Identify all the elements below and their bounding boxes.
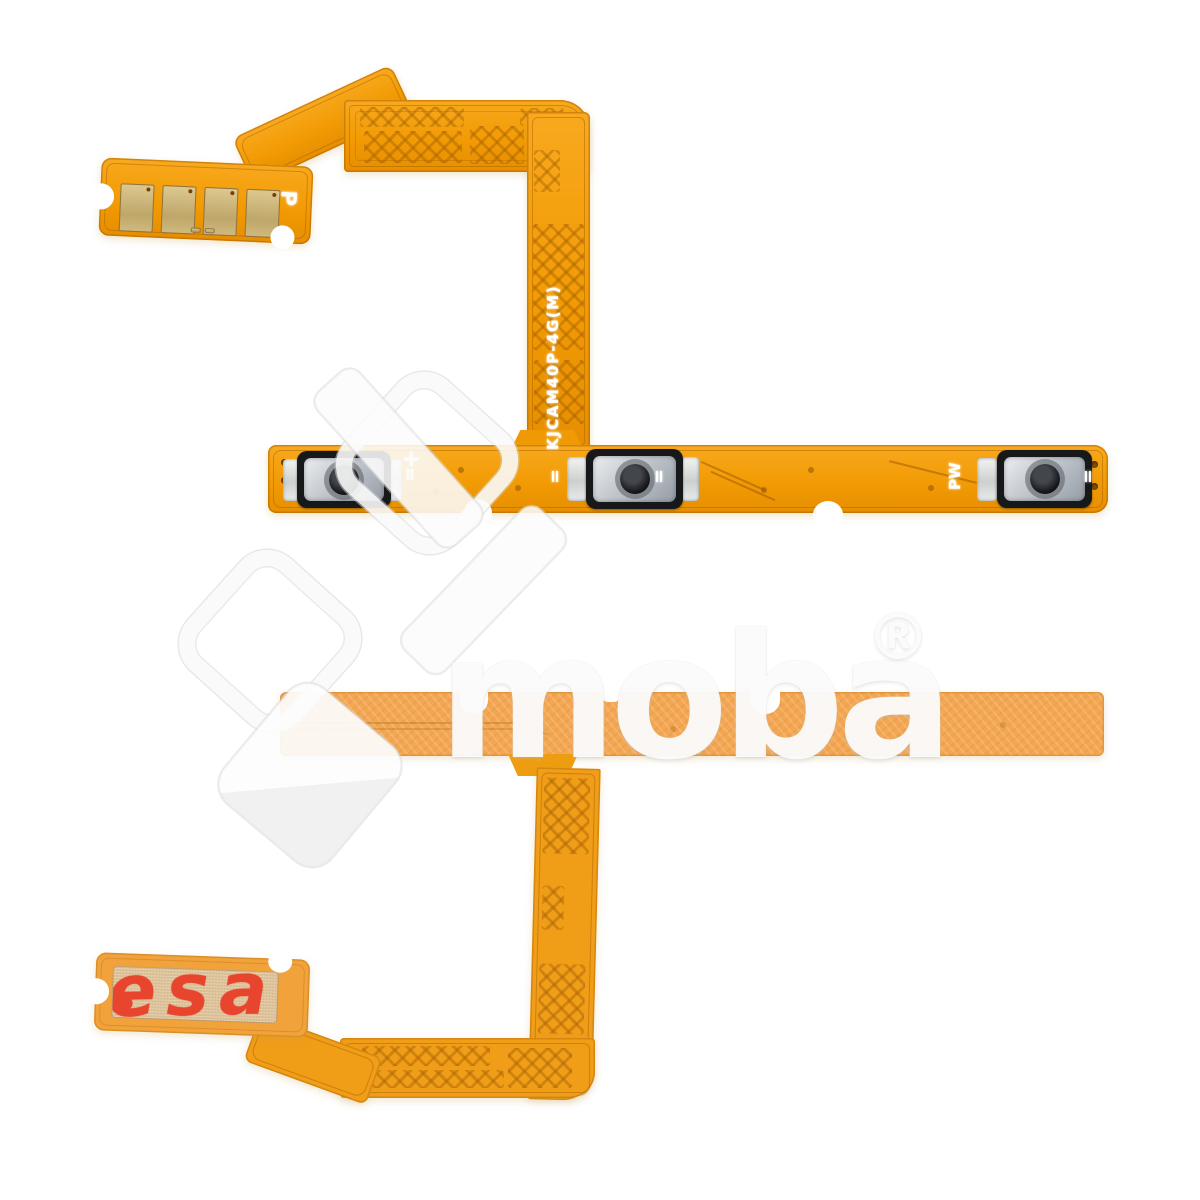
stiffener-crosshatch xyxy=(364,131,462,163)
watermark-registered-icon: ® xyxy=(866,606,930,670)
volume-up-switch xyxy=(297,451,391,508)
switch-plunger xyxy=(620,464,650,494)
stiffener-crosshatch xyxy=(541,885,564,930)
circuit-trace xyxy=(701,461,766,491)
front-connector: P xyxy=(98,157,313,244)
watermark-logo-ribbon xyxy=(396,500,572,679)
back-button-strip xyxy=(280,692,1104,756)
strip-notch xyxy=(464,499,492,527)
adhesive-liner: esa xyxy=(111,966,279,1024)
circuit-trace xyxy=(518,718,549,736)
tick-marking: = xyxy=(546,469,563,483)
solder-dot xyxy=(458,467,464,473)
connector-p-marking: P xyxy=(277,190,299,206)
surface-dot xyxy=(1000,722,1006,728)
solder-dot xyxy=(433,489,439,495)
stiffener-crosshatch xyxy=(362,1046,490,1066)
solder-dot xyxy=(928,485,934,491)
connector-notch xyxy=(268,950,293,973)
solder-joint xyxy=(567,457,587,501)
tick-marking: = xyxy=(401,467,418,481)
stiffener-crosshatch xyxy=(508,1048,572,1088)
switch-plunger xyxy=(329,465,359,495)
stiffener-crosshatch xyxy=(470,126,524,164)
stiffener-crosshatch xyxy=(538,963,586,1034)
product-photo-flex-cable: KJCAM40P-4G(M) P xyxy=(0,0,1200,1200)
strip-notch xyxy=(750,678,780,714)
solder-dot xyxy=(761,487,767,493)
small-contact-pad xyxy=(191,227,201,232)
connector-notch xyxy=(88,183,115,210)
strip-notch xyxy=(813,501,843,529)
strip-notch xyxy=(602,686,620,702)
back-connector: esa xyxy=(94,952,311,1037)
solder-joint xyxy=(977,458,997,501)
circuit-trace xyxy=(711,471,776,501)
connector-notch xyxy=(270,225,295,250)
tick-marking: = xyxy=(650,469,667,483)
model-code-marking: KJCAM40P-4G(M) xyxy=(546,160,566,450)
stiffener-crosshatch xyxy=(358,1070,504,1088)
switch-plunger xyxy=(1030,464,1060,494)
stiffener-crosshatch xyxy=(360,107,464,127)
connector-notch xyxy=(83,978,110,1005)
solder-dot xyxy=(515,485,521,491)
stiffener-crosshatch xyxy=(542,777,590,854)
tick-marking: = xyxy=(1079,469,1096,483)
circuit-trace xyxy=(288,728,518,730)
mounting-hole xyxy=(1091,483,1098,490)
strip-notch xyxy=(460,678,488,714)
circuit-trace xyxy=(288,722,518,724)
mounting-hole xyxy=(1091,461,1098,468)
surface-dot xyxy=(670,726,676,732)
power-pw-marking: PW xyxy=(948,450,963,490)
liner-print-text: esa xyxy=(111,966,278,1024)
solder-joint xyxy=(681,457,699,501)
small-contact-pad xyxy=(205,228,215,233)
solder-dot xyxy=(808,467,814,473)
